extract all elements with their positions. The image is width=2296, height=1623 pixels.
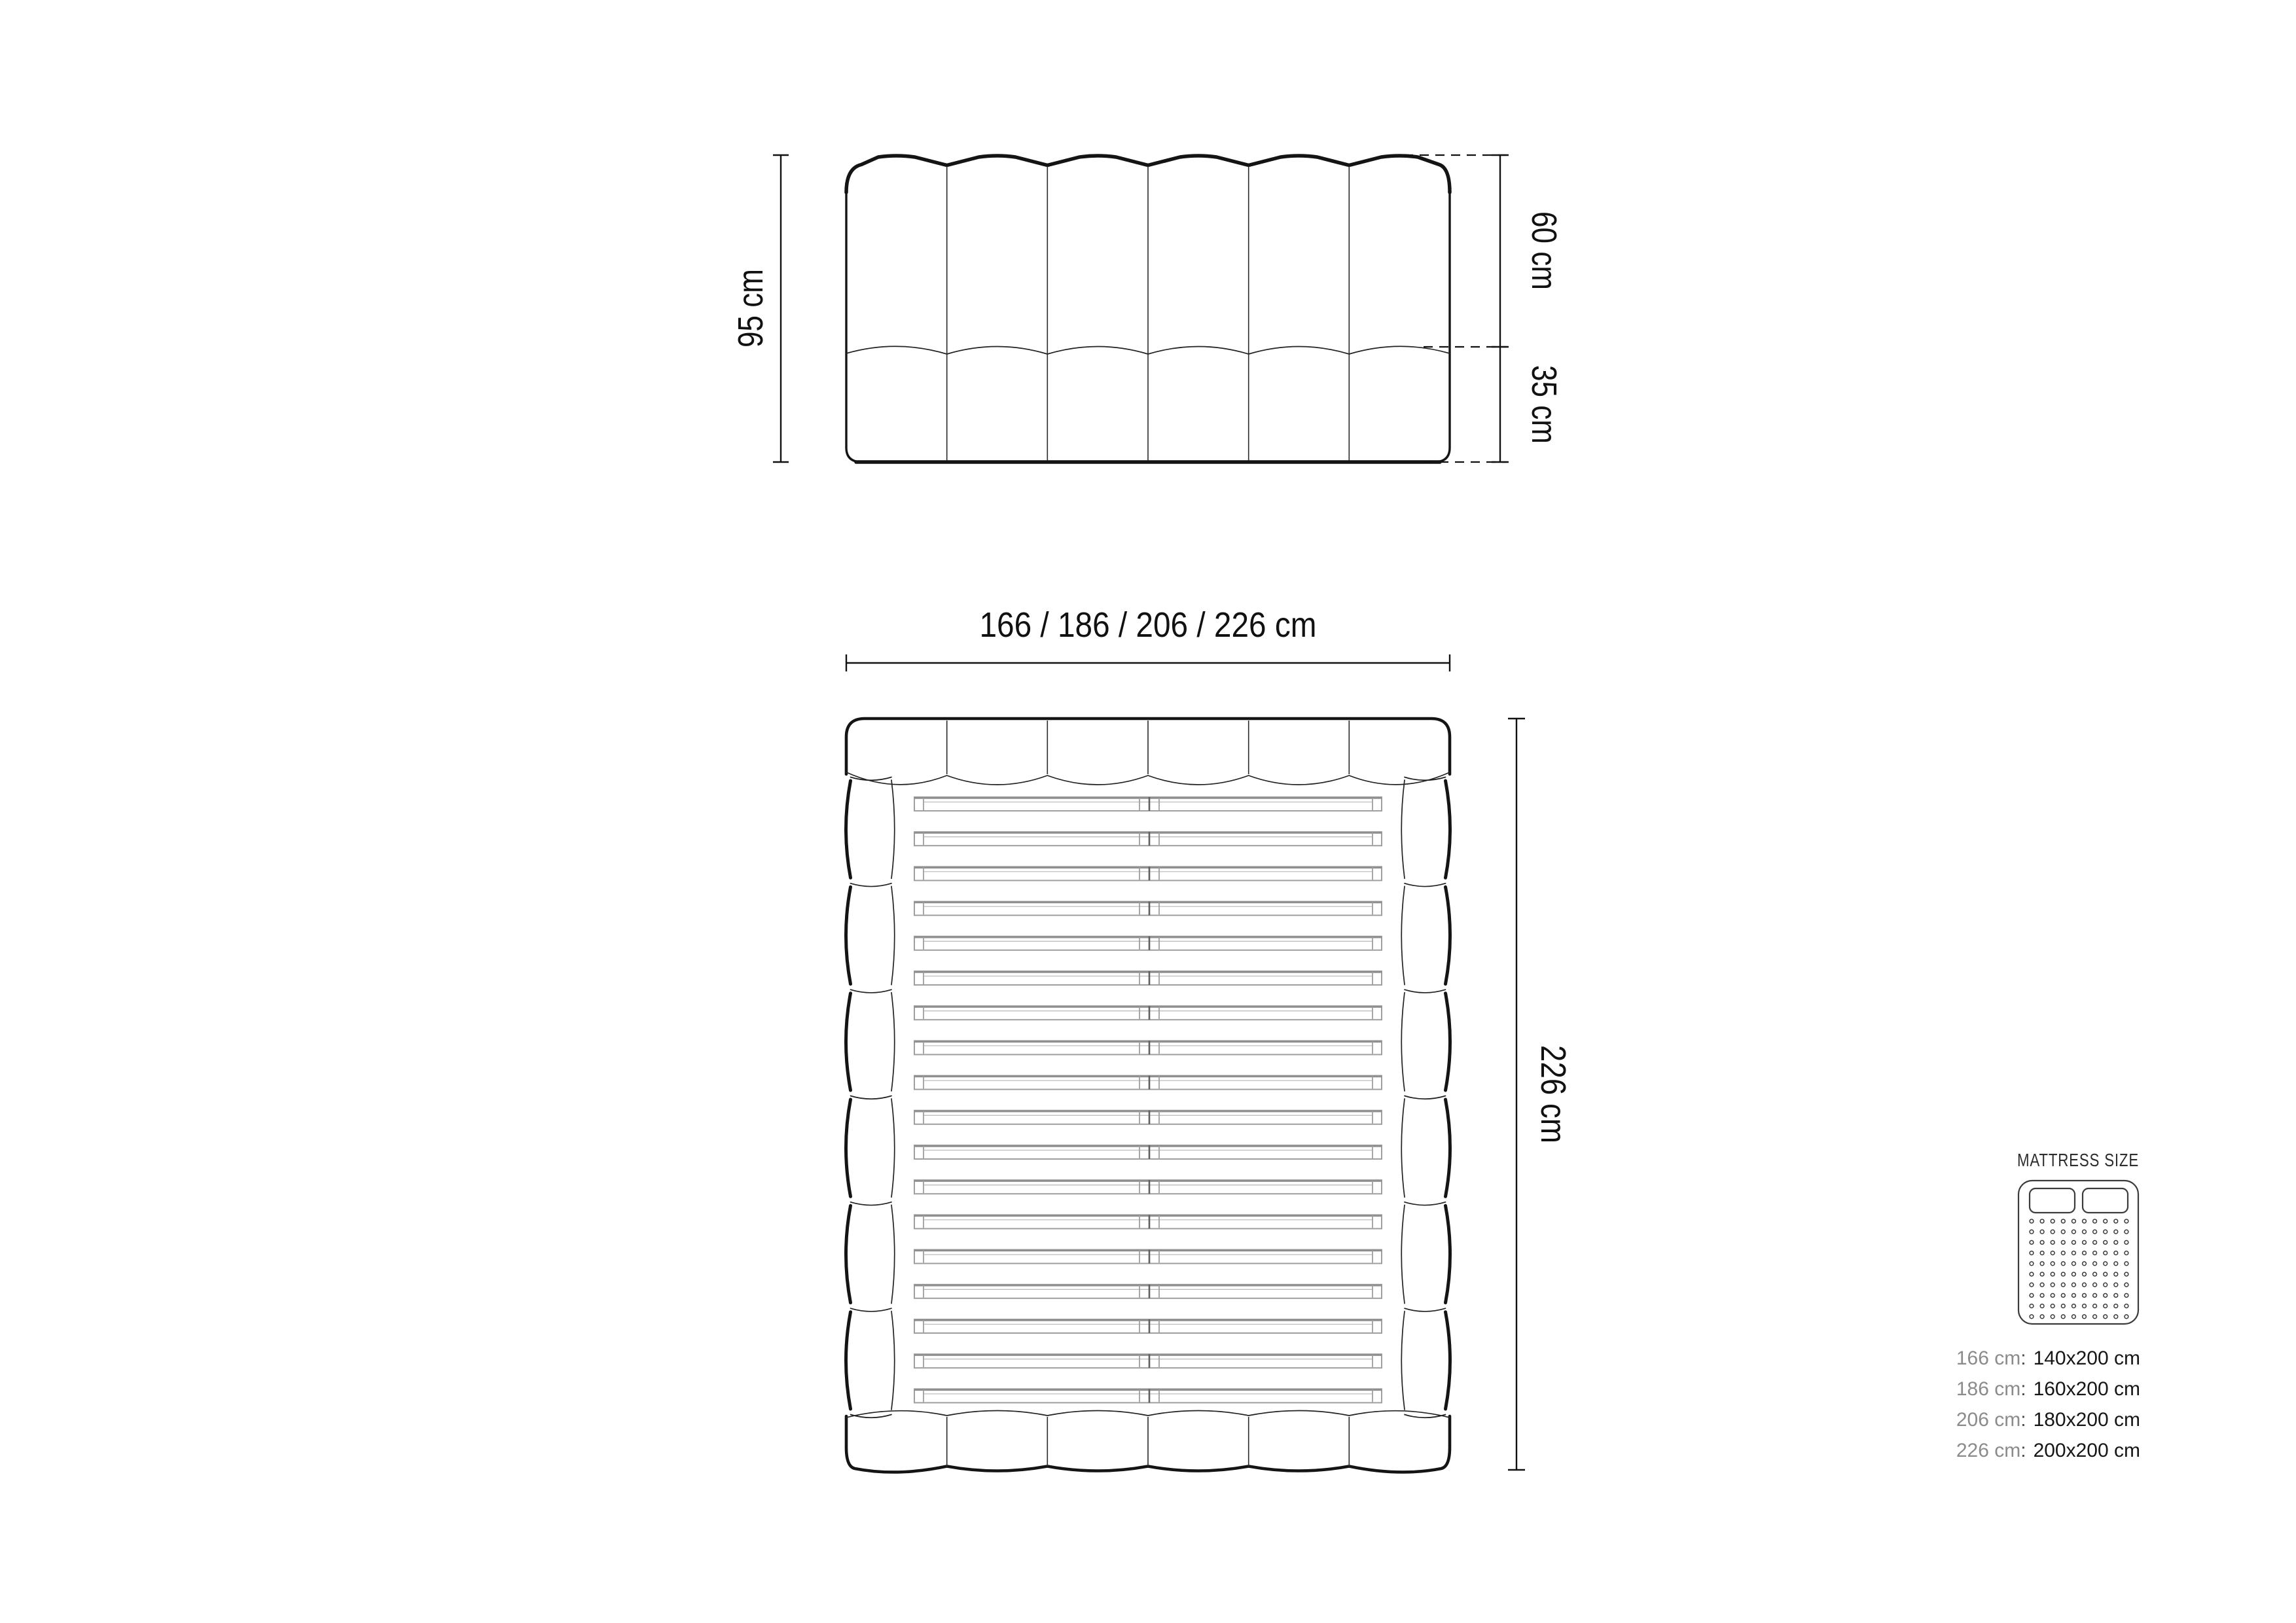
mattress-dot (2104, 1251, 2108, 1255)
mattress-dot (2104, 1230, 2108, 1234)
mattress-dot (2083, 1262, 2087, 1266)
rail-segment (846, 777, 895, 879)
mattress-size-title: MATTRESS SIZE (2017, 1150, 2139, 1170)
mattress-dot (2093, 1262, 2097, 1266)
mattress-dot (2125, 1283, 2128, 1287)
slat (914, 1389, 1382, 1402)
mattress-dot (2051, 1219, 2054, 1223)
right-side-rail (1401, 777, 1450, 1418)
mattress-dot (2051, 1283, 2054, 1287)
mattress-dot (2051, 1251, 2054, 1255)
mattress-dot (2061, 1294, 2065, 1298)
mattress-dot (2114, 1230, 2118, 1234)
mattress-size-list: 166 cm:140x200 cm 186 cm:160x200 cm 206 … (1956, 1347, 2140, 1461)
mattress-dot (2072, 1283, 2076, 1287)
mattress-dot (2061, 1272, 2065, 1276)
slat (914, 797, 1382, 811)
pillow-icon (2030, 1188, 2075, 1213)
mattress-dot (2040, 1294, 2044, 1298)
mattress-dot (2072, 1304, 2076, 1308)
mattress-dot-grid (2030, 1219, 2128, 1319)
mattress-dot (2040, 1283, 2044, 1287)
mattress-dot (2083, 1304, 2087, 1308)
mattress-dot (2040, 1219, 2044, 1223)
slat (914, 1180, 1382, 1194)
size-row: 226 cm:200x200 cm (1956, 1440, 2140, 1461)
mattress-dot (2114, 1315, 2118, 1319)
height-dimension: 95 cm (731, 155, 789, 462)
mattress-dot (2072, 1272, 2076, 1276)
bed-dimensions-diagram: 95 cm 60 cm 35 cm 166 / 186 / 206 / 226 … (0, 0, 2296, 1623)
mattress-dot (2114, 1304, 2118, 1308)
height-dimension-label: 95 cm (731, 269, 770, 348)
mattress-dot (2040, 1315, 2044, 1319)
width-dimension-label: 166 / 186 / 206 / 226 cm (980, 605, 1317, 645)
mattress-dot (2125, 1219, 2128, 1223)
size-row: 166 cm:140x200 cm (1956, 1347, 2140, 1369)
rail-segment (1401, 1308, 1450, 1410)
mattress-dot (2083, 1283, 2087, 1287)
rail-segment (1401, 1096, 1450, 1198)
mattress-dot (2114, 1219, 2118, 1223)
mattress-dot (2083, 1251, 2087, 1255)
slat (914, 866, 1382, 880)
mattress-dot (2072, 1230, 2076, 1234)
mattress-dot (2125, 1272, 2128, 1276)
slat (914, 1215, 1382, 1228)
mattress-dot (2040, 1241, 2044, 1245)
mattress-dot (2030, 1230, 2034, 1234)
mattress-dot (2083, 1272, 2087, 1276)
mattress-dot (2061, 1251, 2065, 1255)
mattress-dot (2072, 1241, 2076, 1245)
rail-segment (1401, 777, 1450, 879)
mattress-dot (2061, 1304, 2065, 1308)
mattress-dot (2030, 1294, 2034, 1298)
headboard-elevation (846, 156, 1450, 462)
mattress-dot (2040, 1262, 2044, 1266)
mattress-dot (2030, 1262, 2034, 1266)
slat (914, 936, 1382, 950)
mattress-dot (2083, 1230, 2087, 1234)
mattress-dot (2061, 1315, 2065, 1319)
slat-grid (914, 797, 1382, 1402)
mattress-dot (2083, 1294, 2087, 1298)
rail-segment (1401, 883, 1450, 985)
mattress-dot (2061, 1262, 2065, 1266)
plan-footboard-inner-line (846, 1411, 1450, 1418)
mattress-dot (2093, 1219, 2097, 1223)
split-dimension: 60 cm 35 cm (1404, 155, 1564, 462)
mattress-dot (2083, 1219, 2087, 1223)
mattress-dot (2072, 1219, 2076, 1223)
plan-footboard-dividers (947, 1417, 1350, 1467)
mattress-dot (2051, 1241, 2054, 1245)
mattress-dot (2125, 1241, 2128, 1245)
mattress-dot (2083, 1315, 2087, 1319)
mattress-dot (2051, 1294, 2054, 1298)
slat (914, 1076, 1382, 1090)
mattress-dot (2093, 1272, 2097, 1276)
length-dimension: 226 cm (1508, 719, 1573, 1470)
mattress-dot (2051, 1230, 2054, 1234)
mattress-dot (2125, 1262, 2128, 1266)
rail-segment (846, 1096, 895, 1198)
mattress-dot (2061, 1241, 2065, 1245)
slat (914, 1111, 1382, 1124)
bed-plan (846, 719, 1450, 1472)
mattress-dot (2104, 1262, 2108, 1266)
rail-segment (846, 990, 895, 1091)
width-dimension: 166 / 186 / 206 / 226 cm (846, 605, 1450, 671)
rail-segment (1401, 1202, 1450, 1304)
mattress-dot (2125, 1294, 2128, 1298)
plan-headboard-dividers (947, 721, 1350, 774)
mattress-dot (2104, 1294, 2108, 1298)
slat (914, 1319, 1382, 1333)
mattress-dot (2104, 1219, 2108, 1223)
pillow-icon (2083, 1188, 2128, 1213)
mattress-dot (2114, 1241, 2118, 1245)
mattress-dot (2104, 1315, 2108, 1319)
mattress-dot (2051, 1304, 2054, 1308)
mattress-dot (2093, 1294, 2097, 1298)
mattress-dot (2030, 1272, 2034, 1276)
size-row: 186 cm:160x200 cm (1956, 1378, 2140, 1400)
left-side-rail (846, 777, 895, 1418)
mattress-dot (2104, 1272, 2108, 1276)
slat (914, 902, 1382, 916)
mattress-size-panel: MATTRESS SIZE 166 cm:140x200 cm 186 cm:1… (1956, 1150, 2140, 1461)
mattress-dot (2030, 1251, 2034, 1255)
headboard-channel-dividers (947, 166, 1350, 461)
mattress-dot (2030, 1241, 2034, 1245)
mattress-dot (2061, 1230, 2065, 1234)
mattress-dot (2093, 1315, 2097, 1319)
slat (914, 1285, 1382, 1298)
slat (914, 1006, 1382, 1020)
mattress-dot (2114, 1283, 2118, 1287)
mattress-dot (2093, 1241, 2097, 1245)
slat (914, 971, 1382, 985)
mattress-dot (2040, 1230, 2044, 1234)
mattress-icon (2018, 1181, 2138, 1324)
mattress-dot (2061, 1283, 2065, 1287)
mattress-dot (2093, 1230, 2097, 1234)
mattress-dot (2072, 1262, 2076, 1266)
length-dimension-label: 226 cm (1534, 1045, 1573, 1143)
mattress-dot (2114, 1251, 2118, 1255)
mattress-dot (2040, 1272, 2044, 1276)
mattress-dot (2104, 1241, 2108, 1245)
mattress-dot (2104, 1283, 2108, 1287)
mattress-dot (2093, 1251, 2097, 1255)
mattress-dot (2030, 1304, 2034, 1308)
mattress-dot (2125, 1230, 2128, 1234)
mattress-dot (2030, 1315, 2034, 1319)
mattress-dot (2093, 1283, 2097, 1287)
slat (914, 832, 1382, 846)
mattress-dot (2061, 1219, 2065, 1223)
rail-segment (846, 1202, 895, 1304)
mattress-dot (2114, 1294, 2118, 1298)
mattress-dot (2093, 1304, 2097, 1308)
size-row: 206 cm:180x200 cm (1956, 1409, 2140, 1431)
slat (914, 1041, 1382, 1054)
headboard-height-label: 60 cm (1524, 211, 1564, 290)
mattress-dot (2072, 1251, 2076, 1255)
slat (914, 1354, 1382, 1368)
mattress-dot (2030, 1283, 2034, 1287)
mattress-dot (2040, 1304, 2044, 1308)
mattress-dot (2114, 1262, 2118, 1266)
mattress-dot (2104, 1304, 2108, 1308)
mattress-dot (2125, 1315, 2128, 1319)
base-height-label: 35 cm (1524, 365, 1564, 444)
rail-segment (1401, 990, 1450, 1091)
rail-segment (846, 883, 895, 985)
mattress-dot (2125, 1304, 2128, 1308)
mattress-dot (2083, 1241, 2087, 1245)
slat (914, 1145, 1382, 1159)
mattress-dot (2072, 1294, 2076, 1298)
mattress-dot (2072, 1315, 2076, 1319)
mattress-dot (2051, 1262, 2054, 1266)
mattress-dot (2051, 1272, 2054, 1276)
mattress-dot (2030, 1219, 2034, 1223)
mattress-dot (2125, 1251, 2128, 1255)
rail-segment (846, 1308, 895, 1410)
mattress-dot (2051, 1315, 2054, 1319)
slat (914, 1250, 1382, 1264)
mattress-dot (2040, 1251, 2044, 1255)
mattress-dot (2114, 1272, 2118, 1276)
